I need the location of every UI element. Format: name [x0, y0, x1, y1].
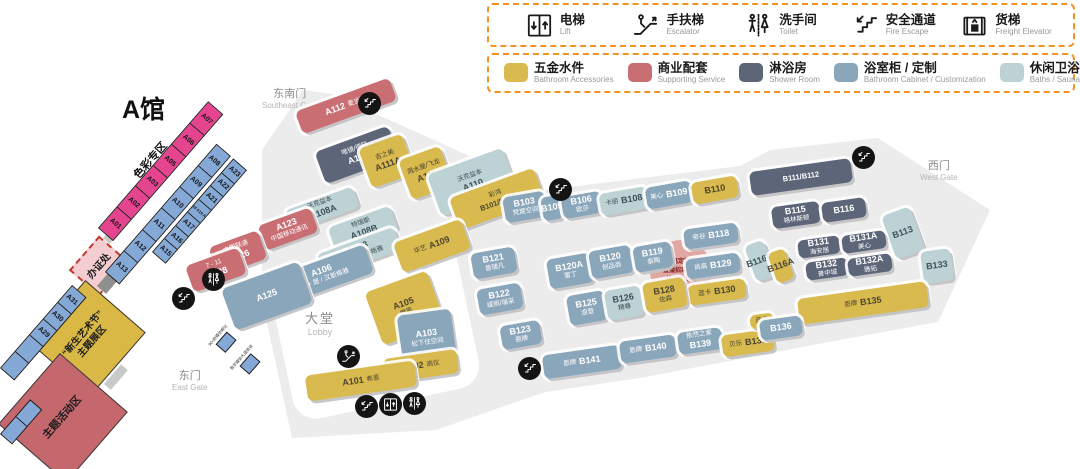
escalator-icon: [632, 12, 659, 39]
category-legend-item: 休闲卫浴 / 桑拿房 / 蒸汽房Baths / Sauna Room / Ste…: [1000, 61, 1080, 84]
booth-brand: 恩牌: [629, 346, 643, 355]
booth-brand: 卡丽: [605, 199, 619, 208]
category-legend-item: 淋浴房Shower Room: [739, 61, 820, 84]
mini-booth[interactable]: 90+新媒体孵化: [207, 323, 240, 356]
booth-id: A112: [324, 102, 347, 118]
booth-brand: 恩牌: [515, 336, 529, 345]
booth-id: A101: [342, 376, 365, 388]
category-cn: 浴室柜 / 定制: [864, 61, 986, 75]
toilet-icon: [745, 12, 772, 39]
fire-escape-icon: [518, 357, 541, 380]
category-en: Bathroom Cabinet / Customization: [864, 76, 986, 85]
booth-brand: 创品商: [602, 262, 622, 272]
gate-label: 东门East Gate: [172, 370, 208, 393]
booth-brand: 泰陶: [647, 258, 661, 267]
escalator-icon: [337, 345, 360, 368]
facility-en: Freight Elevator: [995, 28, 1051, 37]
booth-id: A109: [428, 235, 451, 251]
booth-id: B130: [714, 285, 737, 297]
booth-id: B135: [860, 296, 883, 308]
booth-brand: 希恩: [366, 375, 380, 384]
booth-id: B118: [708, 229, 730, 241]
booth-id: B111/B112: [782, 171, 819, 184]
booth-brand: 蓝卡: [698, 289, 712, 298]
facility-legend-item: 货梯Freight Elevator: [950, 12, 1063, 39]
booth-brand: 浪登: [581, 309, 595, 318]
booth-id: B113: [892, 225, 915, 241]
category-en: Supporting Service: [658, 76, 726, 85]
category-en: Bathroom Accessories: [534, 76, 614, 85]
category-cn: 淋浴房: [769, 61, 820, 75]
booth-brand: 雷丁: [564, 272, 578, 281]
freight-elevator-icon: [961, 12, 988, 39]
facility-en: Fire Escape: [886, 28, 936, 37]
fire-escape-icon: [172, 287, 195, 310]
category-legend-item: 商业配套Supporting Service: [628, 61, 726, 84]
category-swatch: [1000, 63, 1024, 82]
category-swatch: [739, 63, 763, 82]
facility-legend-item: 洗手间Toilet: [725, 12, 838, 39]
toilet-icon: [202, 268, 225, 291]
category-legend-item: 五金水件Bathroom Accessories: [504, 61, 614, 84]
booth-id: B140: [645, 342, 668, 354]
fire-escape-icon: [358, 92, 381, 115]
category-swatch: [628, 63, 652, 82]
facility-en: Escalator: [666, 28, 704, 37]
booth-id: B116A: [766, 257, 795, 275]
booth-id: B109: [665, 187, 688, 200]
lobby-label: 大堂 Lobby: [305, 308, 335, 337]
gate-label: 西门West Gate: [920, 160, 958, 183]
booth-id: B141: [579, 355, 602, 367]
facility-legend-item: 电梯Lift: [499, 12, 612, 39]
fire-escape-icon: [852, 12, 879, 39]
theme-activity-label: 主题活动区: [41, 394, 86, 443]
lift-icon: [526, 12, 553, 39]
floor-plan-page: 电梯Lift 手扶梯Escalator 洗手间Toilet 安全通道Fire E…: [0, 0, 1080, 469]
booth-brand: 精尊: [618, 304, 632, 313]
category-cn: 休闲卫浴 / 桑拿房 / 蒸汽房: [1030, 61, 1080, 75]
fire-escape-icon: [852, 146, 875, 169]
facility-legend-item: 手扶梯Escalator: [612, 12, 725, 39]
booth-brand: 美心: [650, 193, 664, 202]
facility-cn: 洗手间: [779, 13, 817, 27]
booth-id: B139: [689, 339, 712, 351]
booth-brand: 恩牌: [844, 300, 858, 309]
booth-B133[interactable]: B133: [920, 248, 954, 284]
booth-B126[interactable]: B126精尊: [604, 285, 645, 321]
booth-id: A125: [255, 288, 278, 304]
booth-brand: 普瑞凡: [485, 263, 505, 273]
category-en: Baths / Sauna Room / Steam Room: [1030, 76, 1080, 85]
category-cn: 商业配套: [658, 61, 726, 75]
booth-brand: 雅拓: [864, 266, 878, 275]
booth-id: B136: [770, 322, 793, 334]
facilities-legend: 电梯Lift 手扶梯Escalator 洗手间Toilet 安全通道Fire E…: [487, 3, 1075, 47]
mini-booth[interactable]: 数字媒体大道商谈: [229, 343, 265, 380]
booth-id: B116: [833, 204, 855, 216]
booth-id: B110: [704, 184, 726, 197]
booth-id: B133: [926, 260, 949, 272]
category-swatch: [504, 63, 528, 82]
page-title: A馆: [122, 90, 165, 126]
booth-brand: 欧莎: [576, 206, 590, 215]
fire-escape-icon: [355, 395, 378, 418]
booth-id: B105: [541, 201, 564, 214]
lift-icon: [379, 393, 402, 416]
facility-cn: 电梯: [560, 13, 585, 27]
facility-cn: 安全通道: [886, 13, 936, 27]
category-en: Shower Room: [769, 76, 820, 85]
booth-brand: 尚高: [694, 263, 708, 272]
lobby-en: Lobby: [305, 327, 335, 337]
booth-brand: 高仪: [426, 360, 440, 369]
booth-id: B108: [620, 193, 643, 206]
facility-en: Lift: [560, 28, 585, 37]
booth-brand: 美心: [858, 243, 872, 252]
lobby-cn: 大堂: [305, 308, 335, 327]
booth-brand: 华艺: [413, 245, 428, 256]
facility-cn: 货梯: [995, 13, 1051, 27]
booth-brand: 恩牌: [563, 359, 577, 368]
booth-brand: 佐森: [659, 296, 673, 305]
booth-id: B129: [710, 259, 733, 271]
facility-cn: 手扶梯: [666, 13, 704, 27]
category-cn: 五金水件: [534, 61, 614, 75]
booth-brand: 帝谷: [692, 233, 706, 242]
fire-escape-icon: [549, 178, 572, 201]
facility-en: Toilet: [779, 28, 817, 37]
facility-legend-item: 安全通道Fire Escape: [837, 12, 950, 39]
category-swatch: [834, 63, 858, 82]
category-legend-item: 浴室柜 / 定制Bathroom Cabinet / Customization: [834, 61, 986, 84]
booth-brand: 格林斯顿: [783, 215, 810, 225]
booth-brand: 贝乐: [729, 340, 743, 349]
categories-legend: 五金水件Bathroom Accessories 商业配套Supporting …: [487, 53, 1075, 93]
toilet-icon: [403, 392, 426, 415]
